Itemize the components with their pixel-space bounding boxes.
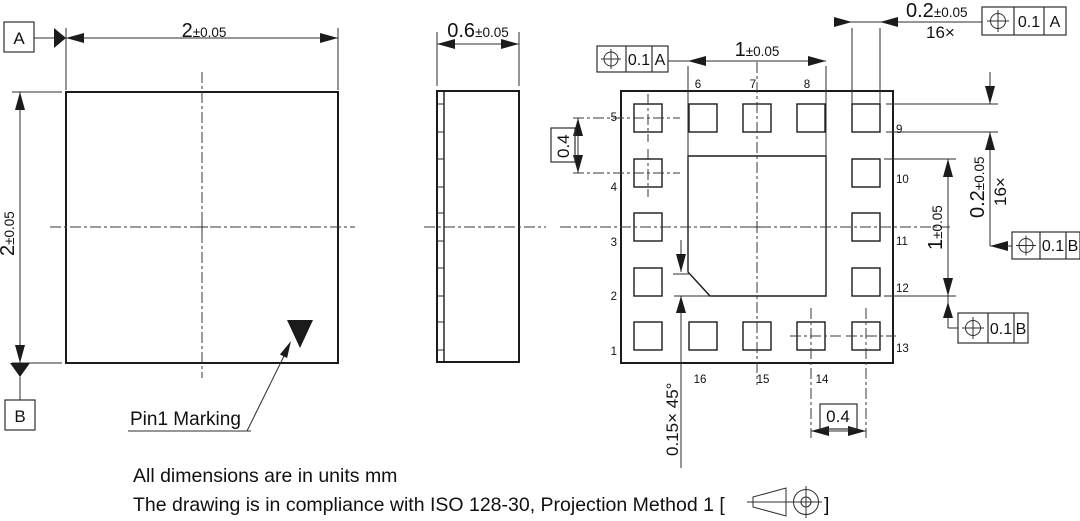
pad-label-5: 5 xyxy=(611,112,617,124)
pitch-left-dim: 0.4 xyxy=(554,134,573,158)
fcf-datum: A xyxy=(1050,14,1061,31)
pad-label-4: 4 xyxy=(611,182,618,194)
fcf-tolerance: 0.1 xyxy=(1042,238,1064,255)
fcf-datum: B xyxy=(1068,238,1079,255)
pin1-marking-label: Pin1 Marking xyxy=(130,409,241,430)
pad-height-count: 16× xyxy=(991,177,1010,206)
pad-label-15: 15 xyxy=(757,374,770,386)
pad-label-7: 7 xyxy=(750,79,756,91)
body-height-dim: 2±0.05 xyxy=(0,211,19,256)
datum-b-label: B xyxy=(14,407,25,426)
fcf-datum: B xyxy=(1016,321,1027,338)
background xyxy=(0,0,1080,521)
pad-width-count: 16× xyxy=(926,23,955,42)
pad-label-6: 6 xyxy=(695,79,701,91)
compliance-note: The drawing is in compliance with ISO 12… xyxy=(133,494,725,516)
units-note: All dimensions are in units mm xyxy=(133,465,397,487)
pad-label-11: 11 xyxy=(896,236,908,248)
package-outline-drawing: Pin1 Marking 2±0.05 A 2±0.05 B 0.6±0.05 xyxy=(0,0,1080,521)
pad-label-2: 2 xyxy=(611,291,617,303)
pad-label-9: 9 xyxy=(896,124,902,136)
fcf-datum: A xyxy=(655,52,666,69)
pad-label-16: 16 xyxy=(694,374,707,386)
pad-label-8: 8 xyxy=(804,79,810,91)
pad-label-13: 13 xyxy=(896,343,909,355)
chamfer-dim: 0.15× 45° xyxy=(663,383,682,456)
datum-a-label: A xyxy=(13,29,25,48)
compliance-note-close: ] xyxy=(824,494,829,516)
pad-label-1: 1 xyxy=(611,346,617,358)
pad-label-3: 3 xyxy=(611,237,617,249)
fcf-tolerance: 0.1 xyxy=(628,52,650,69)
fcf-tolerance: 0.1 xyxy=(1018,14,1040,31)
pad-label-14: 14 xyxy=(816,374,829,386)
pad-label-12: 12 xyxy=(896,283,909,295)
pad-label-10: 10 xyxy=(896,174,909,186)
pitch-bottom-dim: 0.4 xyxy=(826,407,850,426)
fcf-tolerance: 0.1 xyxy=(990,321,1012,338)
drawing-canvas: Pin1 Marking 2±0.05 A 2±0.05 B 0.6±0.05 xyxy=(0,0,1080,521)
